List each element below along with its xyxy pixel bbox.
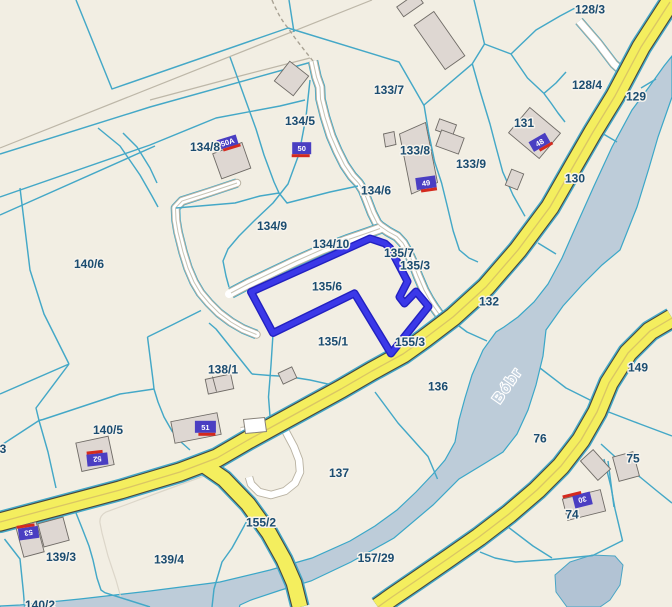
svg-text:128/3: 128/3 [575,3,605,17]
svg-text:139/3: 139/3 [46,550,76,564]
svg-text:140/6: 140/6 [74,257,104,271]
svg-text:139/4: 139/4 [154,553,184,567]
svg-text:76: 76 [533,432,547,446]
svg-text:134/8: 134/8 [190,140,220,154]
svg-text:134/5: 134/5 [285,114,315,128]
svg-text:50: 50 [298,144,306,153]
svg-text:130: 130 [565,172,585,186]
svg-text:74: 74 [565,508,579,522]
svg-text:134/6: 134/6 [361,184,391,198]
svg-text:134/10: 134/10 [313,237,350,251]
svg-text:135/6: 135/6 [312,280,342,294]
svg-text:157/29: 157/29 [358,551,395,565]
svg-text:133/9: 133/9 [456,157,486,171]
svg-text:135/3: 135/3 [400,259,430,273]
svg-text:155/3: 155/3 [395,335,425,349]
svg-text:149: 149 [628,361,648,375]
svg-text:133/7: 133/7 [374,83,404,97]
svg-text:131: 131 [514,116,534,130]
svg-text:136: 136 [428,380,448,394]
svg-text:140/5: 140/5 [93,423,123,437]
svg-text:134/9: 134/9 [257,219,287,233]
svg-text:75: 75 [626,452,640,466]
svg-text:128/4: 128/4 [572,78,602,92]
svg-text:140/2: 140/2 [25,598,55,607]
svg-text:49: 49 [421,178,431,188]
svg-text:137: 137 [329,466,349,480]
svg-text:52: 52 [93,454,102,464]
svg-text:132: 132 [479,295,499,309]
svg-text:138/1: 138/1 [208,363,238,377]
svg-text:133/8: 133/8 [400,144,430,158]
svg-text:135/1: 135/1 [318,335,348,349]
svg-text:53: 53 [24,528,34,538]
svg-text:155/2: 155/2 [246,516,276,530]
svg-text:3: 3 [0,442,7,456]
svg-text:129: 129 [626,90,646,104]
svg-text:51: 51 [201,423,209,432]
